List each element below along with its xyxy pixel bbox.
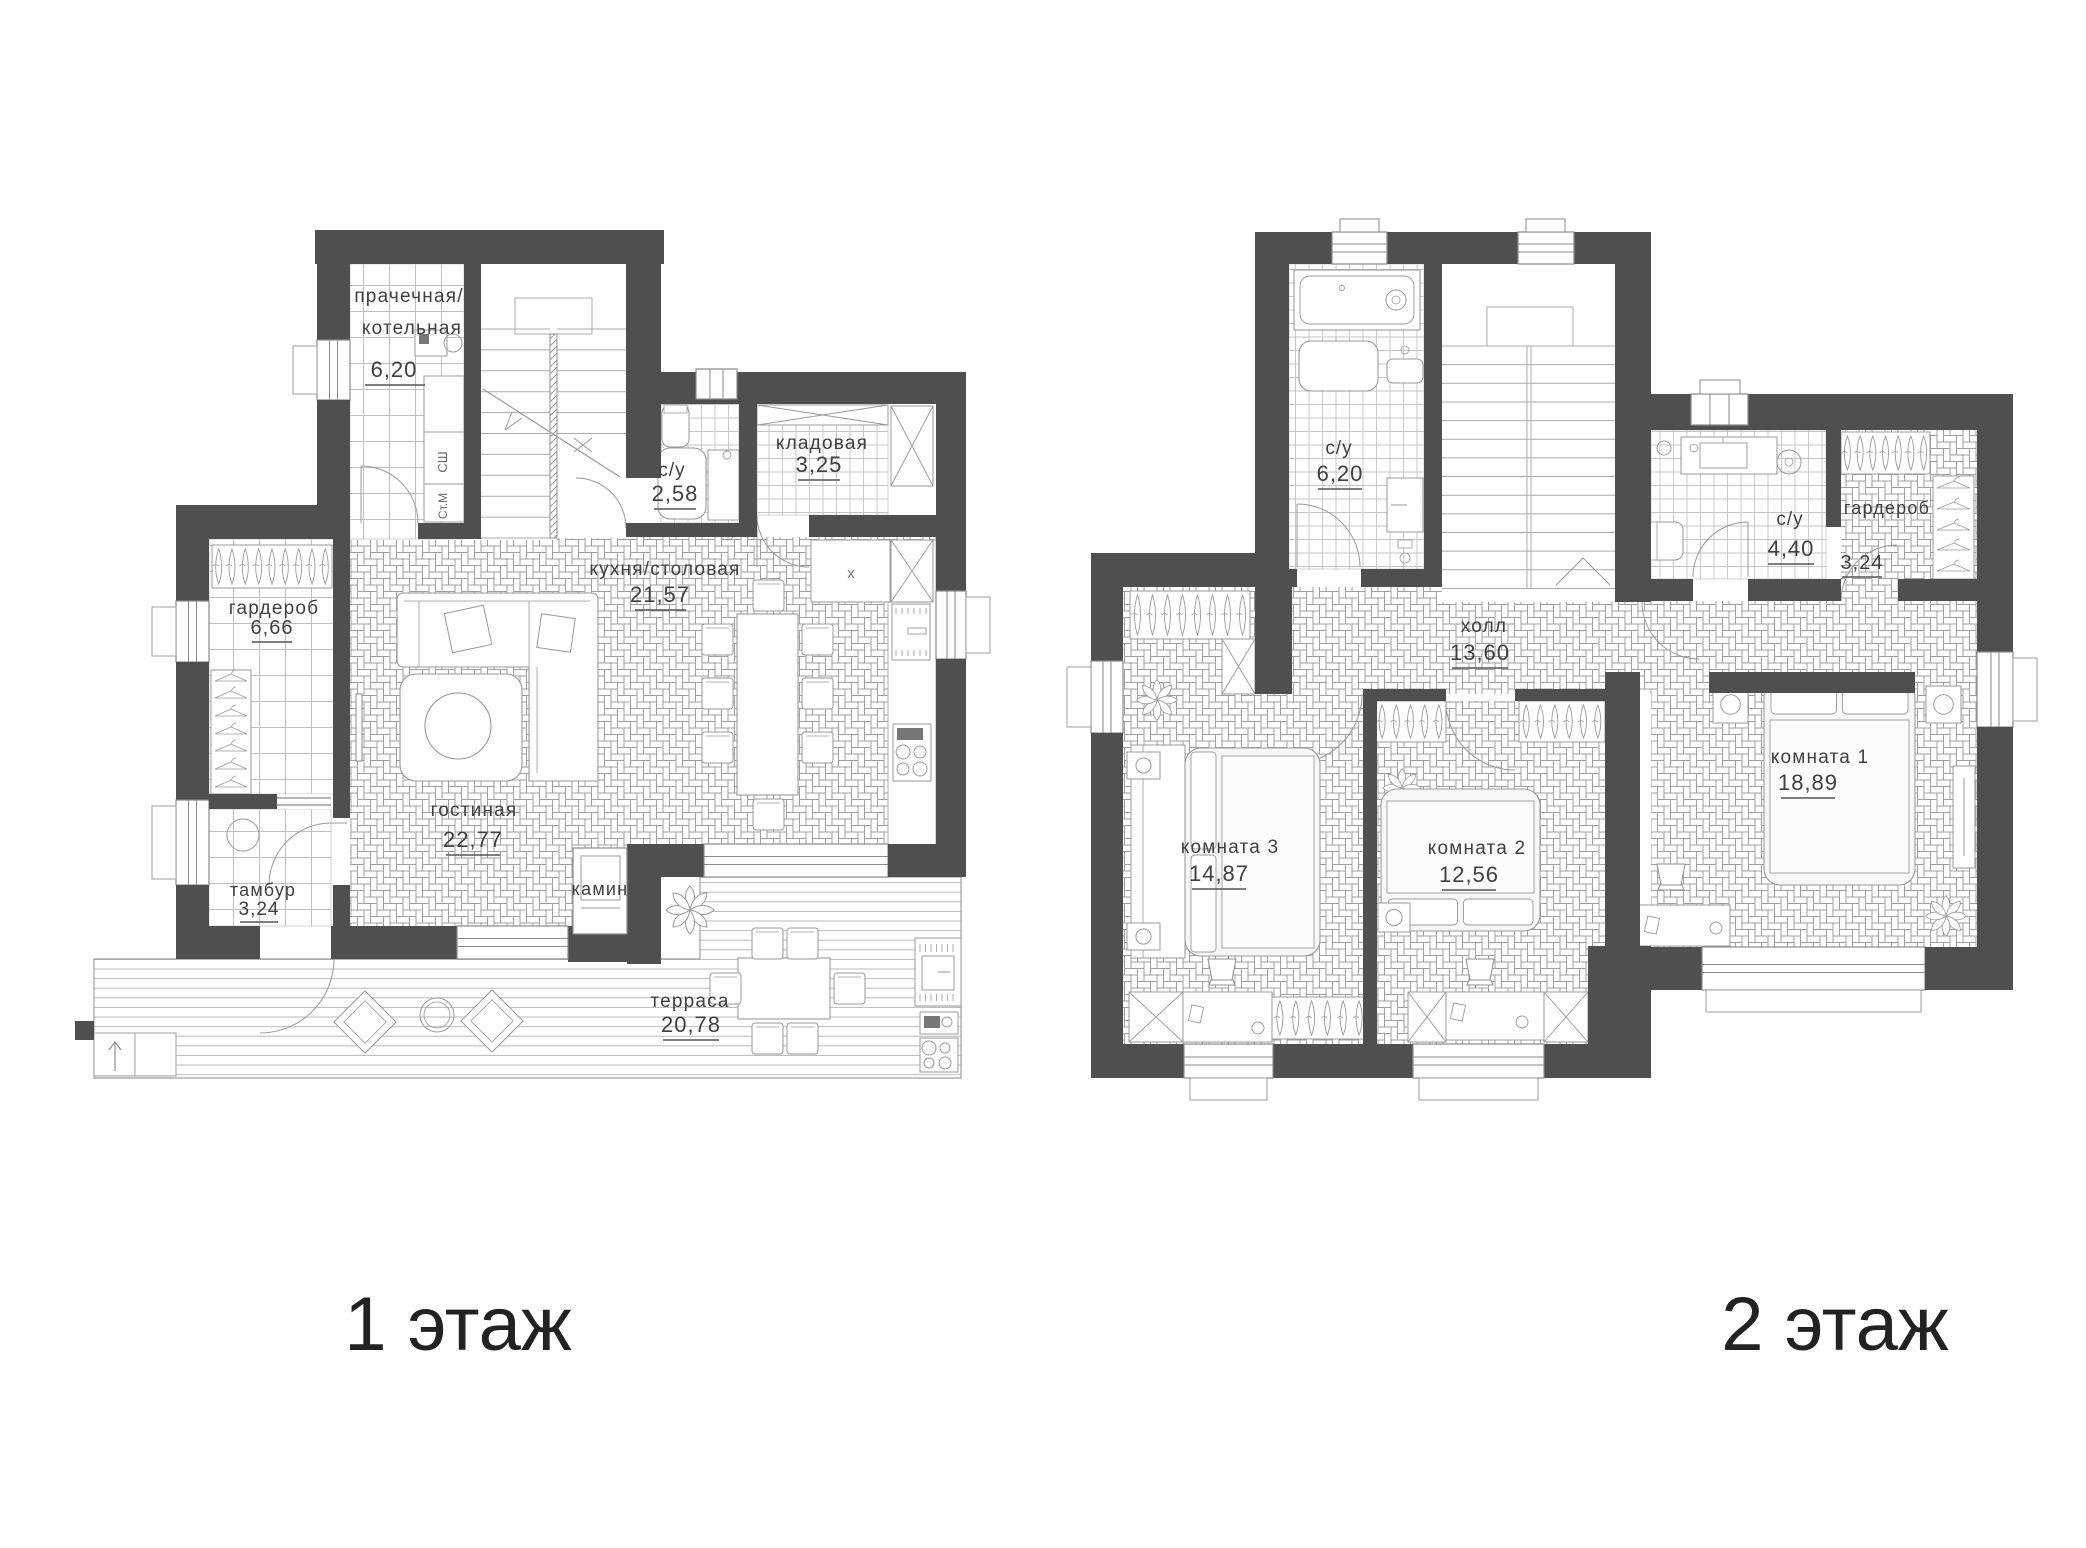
svg-text:x: x (847, 565, 855, 582)
svg-text:кухня/столовая: кухня/столовая (589, 559, 740, 580)
svg-text:холл: холл (1461, 616, 1507, 637)
svg-text:2 этаж: 2 этаж (1721, 1282, 1949, 1367)
svg-text:22,77: 22,77 (443, 827, 503, 852)
svg-text:комната 2: комната 2 (1428, 838, 1527, 859)
svg-text:6,20: 6,20 (1317, 461, 1364, 486)
svg-text:терраса: терраса (650, 991, 729, 1012)
svg-text:20,78: 20,78 (661, 1012, 721, 1037)
svg-text:6,20: 6,20 (371, 357, 418, 382)
svg-text:СШ: СШ (435, 451, 450, 472)
svg-text:3,25: 3,25 (796, 452, 843, 477)
svg-text:котельная: котельная (362, 318, 462, 339)
svg-text:18,89: 18,89 (1778, 770, 1838, 795)
svg-text:камин: камин (572, 879, 629, 899)
svg-text:14,87: 14,87 (1189, 861, 1249, 886)
svg-text:гардероб: гардероб (1844, 498, 1930, 518)
svg-text:Ст.М: Ст.М (436, 493, 450, 519)
svg-text:гостиная: гостиная (431, 800, 518, 821)
svg-text:21,57: 21,57 (630, 582, 690, 607)
svg-text:3,24: 3,24 (1841, 552, 1884, 574)
svg-text:с/у: с/у (658, 460, 685, 481)
svg-text:4,40: 4,40 (1768, 536, 1815, 561)
svg-text:13,60: 13,60 (1450, 640, 1510, 665)
svg-text:2,58: 2,58 (652, 481, 699, 506)
svg-text:12,56: 12,56 (1439, 862, 1499, 887)
svg-text:1 этаж: 1 этаж (344, 1282, 572, 1367)
svg-text:тамбур: тамбур (230, 880, 296, 900)
svg-text:комната 1: комната 1 (1771, 747, 1870, 768)
svg-text:гардероб: гардероб (229, 598, 319, 619)
svg-text:комната 3: комната 3 (1181, 837, 1280, 858)
svg-text:с/у: с/у (1776, 509, 1803, 530)
svg-text:кладовая: кладовая (776, 433, 868, 454)
svg-text:с/у: с/у (1325, 438, 1352, 459)
svg-text:3,24: 3,24 (239, 899, 280, 920)
svg-text:6,66: 6,66 (251, 617, 294, 639)
svg-text:прачечная/: прачечная/ (354, 286, 463, 307)
